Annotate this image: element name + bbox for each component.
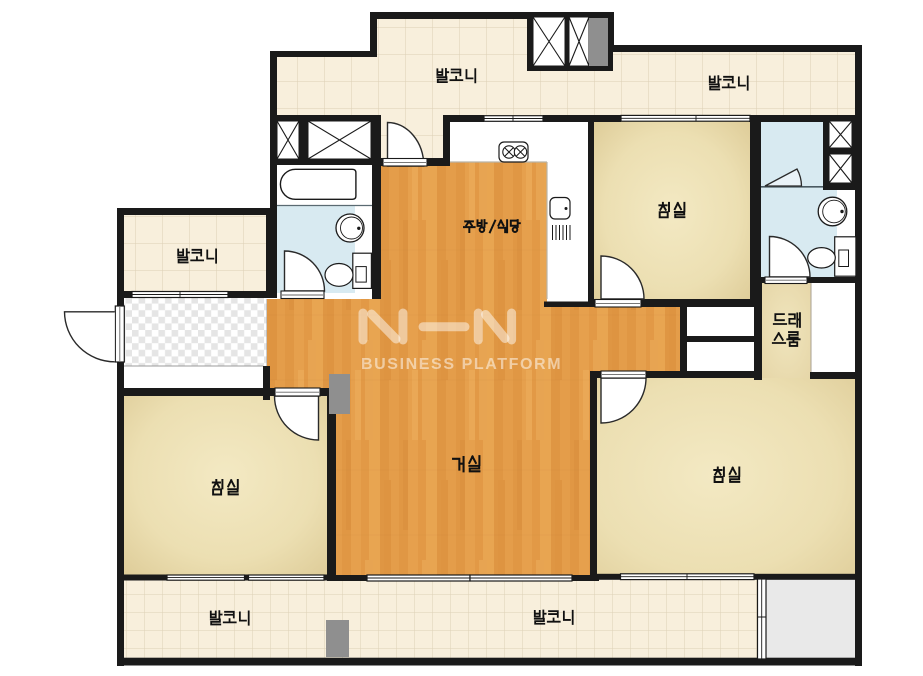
svg-text:BUSINESS PLATFORM: BUSINESS PLATFORM: [361, 356, 562, 373]
